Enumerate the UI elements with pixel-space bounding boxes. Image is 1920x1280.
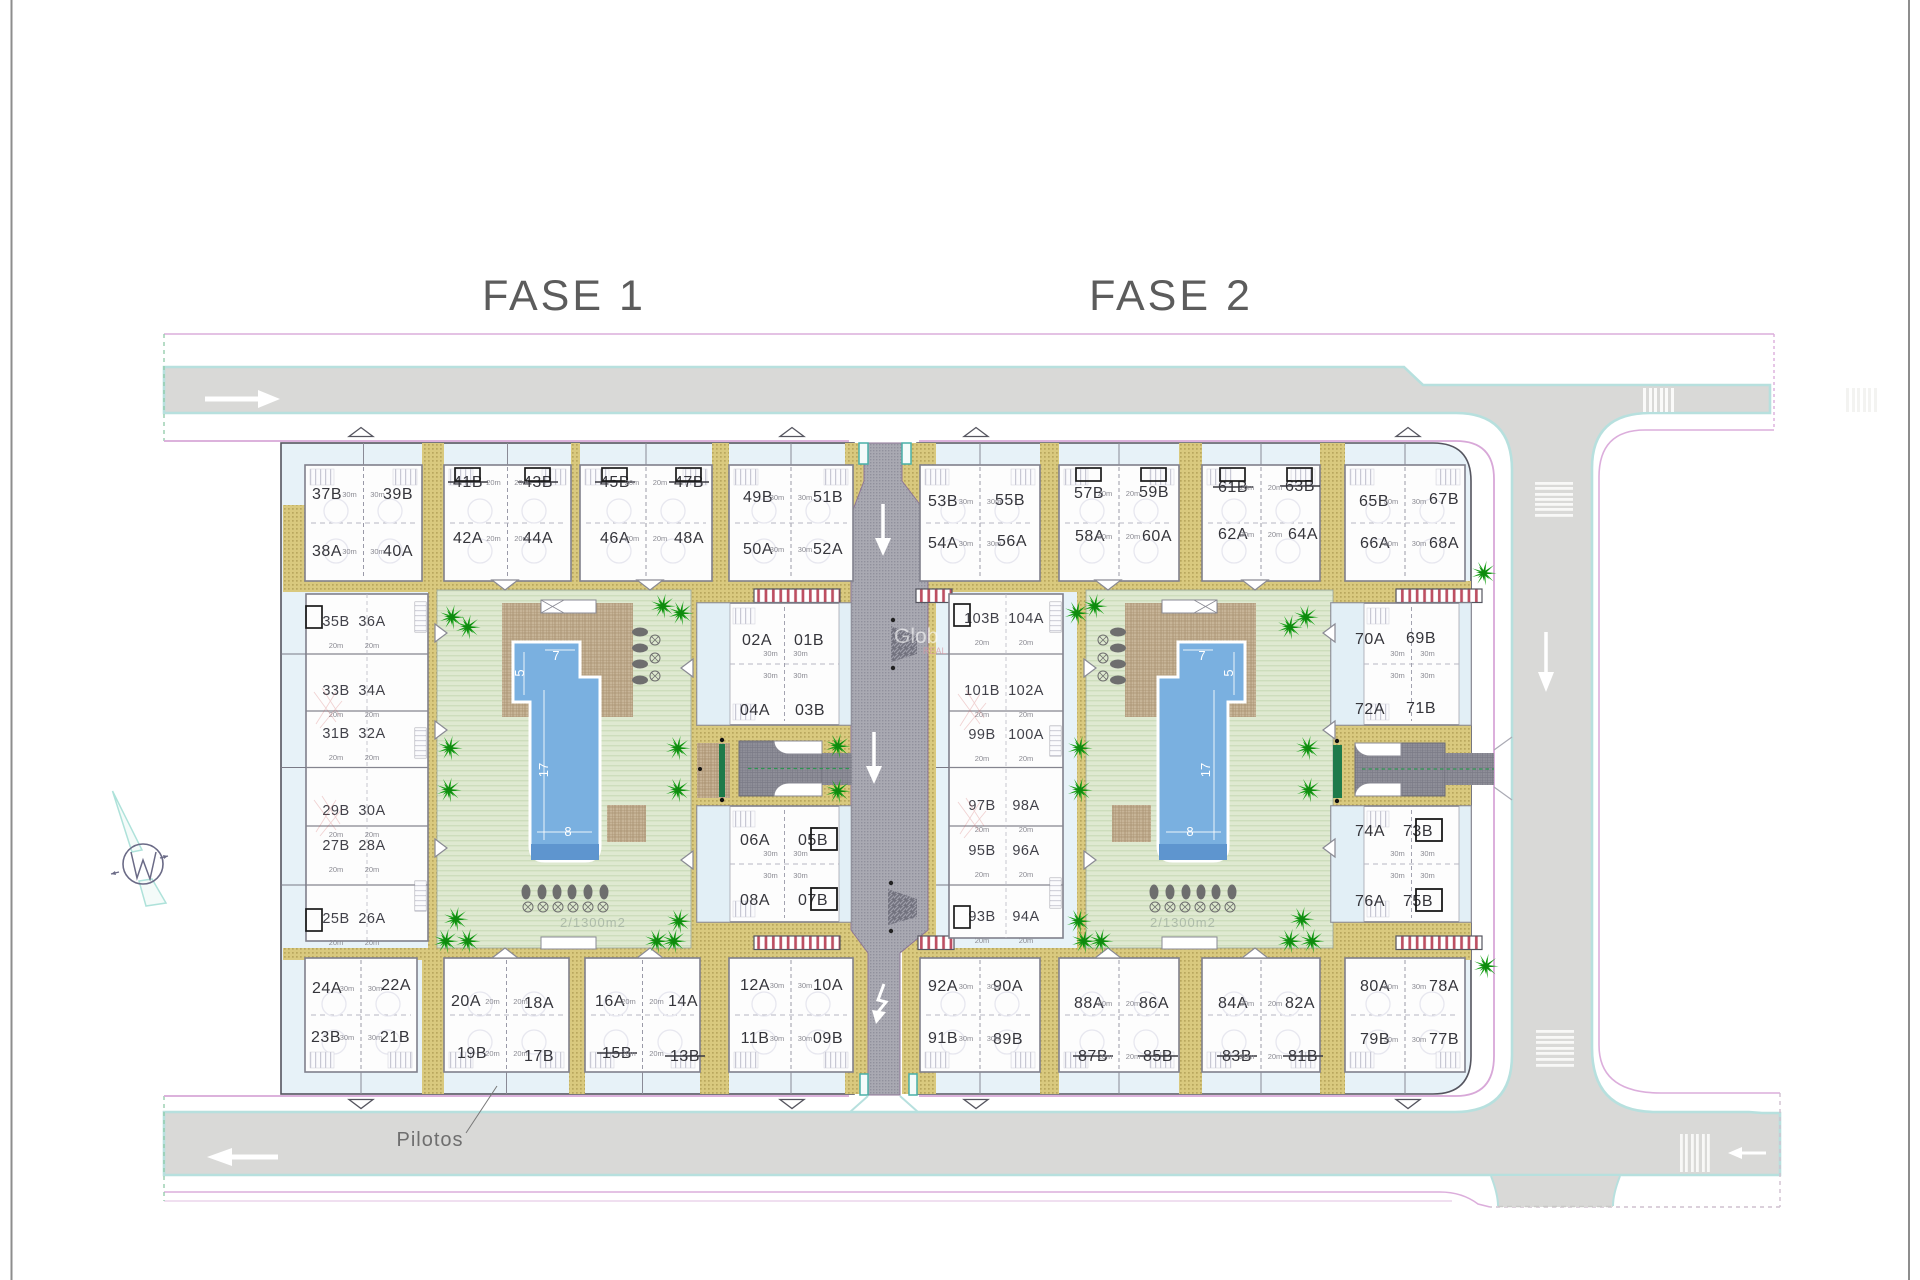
svg-text:30m: 30m <box>798 981 813 990</box>
svg-text:99B: 99B <box>968 727 995 743</box>
svg-text:20m: 20m <box>653 478 668 487</box>
svg-text:38A: 38A <box>312 543 342 560</box>
svg-text:20m: 20m <box>975 825 990 834</box>
svg-text:30m: 30m <box>1384 539 1399 548</box>
svg-text:30m: 30m <box>1390 871 1405 880</box>
svg-text:30m: 30m <box>368 1033 383 1042</box>
svg-text:30m: 30m <box>770 545 785 554</box>
svg-text:24A: 24A <box>312 980 342 997</box>
svg-text:20m: 20m <box>365 865 380 874</box>
svg-text:35B: 35B <box>322 614 349 630</box>
svg-text:03B: 03B <box>795 702 825 719</box>
svg-text:20m: 20m <box>1019 870 1034 879</box>
svg-text:07B: 07B <box>798 892 828 909</box>
svg-text:Glob: Glob <box>894 625 938 648</box>
svg-text:37B: 37B <box>312 486 342 503</box>
svg-text:30m: 30m <box>763 671 778 680</box>
svg-text:51B: 51B <box>813 489 843 506</box>
svg-text:30m: 30m <box>959 982 974 991</box>
svg-text:8: 8 <box>1186 824 1193 839</box>
svg-text:59B: 59B <box>1139 484 1169 501</box>
svg-text:20m: 20m <box>1126 489 1141 498</box>
svg-text:20A: 20A <box>451 993 481 1010</box>
svg-text:30m: 30m <box>368 984 383 993</box>
svg-text:20m: 20m <box>1098 1052 1113 1061</box>
svg-text:22A: 22A <box>381 977 411 994</box>
svg-text:32A: 32A <box>358 726 385 742</box>
svg-text:20m: 20m <box>514 478 529 487</box>
svg-text:06A: 06A <box>740 832 770 849</box>
svg-text:12A: 12A <box>740 977 770 994</box>
svg-text:78A: 78A <box>1429 978 1459 995</box>
svg-text:20m: 20m <box>1098 532 1113 541</box>
svg-text:30m: 30m <box>987 1034 1002 1043</box>
svg-text:30m: 30m <box>763 649 778 658</box>
svg-text:17B: 17B <box>524 1048 554 1065</box>
svg-text:48A: 48A <box>674 530 704 547</box>
svg-text:31B: 31B <box>322 726 349 742</box>
svg-text:8: 8 <box>564 824 571 839</box>
svg-text:20m: 20m <box>1019 825 1034 834</box>
svg-text:21B: 21B <box>380 1029 410 1046</box>
svg-text:REAL: REAL <box>923 646 947 656</box>
svg-text:96A: 96A <box>1012 843 1039 859</box>
svg-text:20m: 20m <box>1268 530 1283 539</box>
svg-text:17: 17 <box>536 763 551 777</box>
svg-text:20m: 20m <box>649 1049 664 1058</box>
svg-text:30m: 30m <box>987 982 1002 991</box>
svg-text:20m: 20m <box>975 936 990 945</box>
svg-text:20m: 20m <box>329 865 344 874</box>
svg-text:5: 5 <box>1221 669 1236 676</box>
svg-text:30m: 30m <box>1390 671 1405 680</box>
svg-text:02A: 02A <box>742 632 772 649</box>
svg-text:20m: 20m <box>1126 1052 1141 1061</box>
svg-text:30m: 30m <box>798 1034 813 1043</box>
svg-text:30m: 30m <box>798 493 813 502</box>
svg-text:30m: 30m <box>793 649 808 658</box>
svg-text:94A: 94A <box>1012 909 1039 925</box>
svg-text:09B: 09B <box>813 1030 843 1047</box>
svg-text:101B: 101B <box>964 683 1000 699</box>
svg-text:20m: 20m <box>653 534 668 543</box>
svg-text:20m: 20m <box>513 1049 528 1058</box>
svg-text:49B: 49B <box>743 489 773 506</box>
svg-text:97B: 97B <box>968 798 995 814</box>
svg-text:20m: 20m <box>365 641 380 650</box>
svg-text:08A: 08A <box>740 892 770 909</box>
svg-text:20m: 20m <box>1268 483 1283 492</box>
svg-text:20m: 20m <box>1240 530 1255 539</box>
svg-text:23B: 23B <box>311 1029 341 1046</box>
svg-text:20m: 20m <box>486 478 501 487</box>
svg-text:11B: 11B <box>741 1030 770 1047</box>
svg-text:20m: 20m <box>1098 999 1113 1008</box>
svg-text:20m: 20m <box>649 997 664 1006</box>
svg-text:20m: 20m <box>1019 936 1034 945</box>
svg-text:30m: 30m <box>770 981 785 990</box>
svg-text:27B: 27B <box>322 838 349 854</box>
svg-text:30m: 30m <box>793 849 808 858</box>
svg-text:30m: 30m <box>342 490 357 499</box>
svg-text:20m: 20m <box>1019 638 1034 647</box>
svg-text:30m: 30m <box>987 539 1002 548</box>
svg-text:56A: 56A <box>997 533 1027 550</box>
svg-text:28A: 28A <box>358 838 385 854</box>
svg-text:20m: 20m <box>486 534 501 543</box>
svg-text:75B: 75B <box>1403 893 1433 910</box>
svg-text:18A: 18A <box>524 995 554 1012</box>
svg-text:20m: 20m <box>1126 532 1141 541</box>
svg-text:60A: 60A <box>1142 528 1172 545</box>
svg-text:20m: 20m <box>1019 754 1034 763</box>
svg-text:20m: 20m <box>485 1049 500 1058</box>
svg-text:19B: 19B <box>457 1045 487 1062</box>
svg-text:30m: 30m <box>793 671 808 680</box>
svg-text:Pilotos: Pilotos <box>396 1129 463 1151</box>
svg-text:30m: 30m <box>1420 871 1435 880</box>
svg-text:72A: 72A <box>1355 701 1385 718</box>
svg-text:20m: 20m <box>1240 999 1255 1008</box>
svg-text:7: 7 <box>552 648 559 663</box>
svg-text:68A: 68A <box>1429 535 1459 552</box>
svg-text:92A: 92A <box>928 978 958 995</box>
svg-text:20m: 20m <box>625 478 640 487</box>
svg-text:86A: 86A <box>1139 995 1169 1012</box>
svg-text:05B: 05B <box>798 832 828 849</box>
svg-text:30m: 30m <box>1412 497 1427 506</box>
svg-text:20m: 20m <box>329 641 344 650</box>
svg-text:2/1300m2: 2/1300m2 <box>1150 915 1216 930</box>
svg-text:50A: 50A <box>743 541 773 558</box>
svg-text:73B: 73B <box>1403 823 1433 840</box>
svg-text:30m: 30m <box>1384 497 1399 506</box>
svg-text:30m: 30m <box>1420 849 1435 858</box>
svg-text:04A: 04A <box>740 702 770 719</box>
svg-text:30m: 30m <box>342 547 357 556</box>
svg-text:30m: 30m <box>340 1033 355 1042</box>
svg-text:30m: 30m <box>1384 1035 1399 1044</box>
svg-text:40A: 40A <box>383 543 413 560</box>
svg-text:76A: 76A <box>1355 893 1385 910</box>
svg-text:69B: 69B <box>1406 630 1436 647</box>
svg-text:26A: 26A <box>358 911 385 927</box>
svg-text:20m: 20m <box>365 938 380 947</box>
svg-text:30m: 30m <box>1420 649 1435 658</box>
svg-text:01B: 01B <box>794 632 824 649</box>
svg-text:30m: 30m <box>763 871 778 880</box>
svg-text:30m: 30m <box>770 1034 785 1043</box>
svg-text:FASE 2: FASE 2 <box>1089 272 1253 320</box>
svg-text:5: 5 <box>512 669 527 676</box>
svg-text:20m: 20m <box>975 870 990 879</box>
svg-text:34A: 34A <box>358 683 385 699</box>
svg-text:30m: 30m <box>959 1034 974 1043</box>
svg-text:104A: 104A <box>1008 611 1044 627</box>
svg-text:30m: 30m <box>1390 649 1405 658</box>
svg-text:20m: 20m <box>485 997 500 1006</box>
svg-text:20m: 20m <box>625 534 640 543</box>
svg-text:98A: 98A <box>1012 798 1039 814</box>
svg-text:20m: 20m <box>329 753 344 762</box>
svg-text:20m: 20m <box>975 754 990 763</box>
svg-text:102A: 102A <box>1008 683 1044 699</box>
svg-text:30m: 30m <box>370 547 385 556</box>
svg-text:20m: 20m <box>621 997 636 1006</box>
svg-text:30m: 30m <box>1390 849 1405 858</box>
svg-text:70A: 70A <box>1355 631 1385 648</box>
svg-text:30m: 30m <box>370 490 385 499</box>
svg-text:33B: 33B <box>322 683 349 699</box>
svg-text:20m: 20m <box>365 753 380 762</box>
svg-text:93B: 93B <box>968 909 995 925</box>
svg-text:30m: 30m <box>798 545 813 554</box>
svg-text:91B: 91B <box>928 1030 958 1047</box>
svg-text:30m: 30m <box>763 849 778 858</box>
svg-text:20m: 20m <box>329 938 344 947</box>
svg-text:20m: 20m <box>514 534 529 543</box>
svg-text:30m: 30m <box>959 497 974 506</box>
svg-text:10A: 10A <box>813 977 843 994</box>
svg-text:42A: 42A <box>453 530 483 547</box>
svg-text:39B: 39B <box>383 486 413 503</box>
svg-text:20m: 20m <box>1019 710 1034 719</box>
svg-text:30m: 30m <box>793 871 808 880</box>
svg-text:30m: 30m <box>1420 671 1435 680</box>
svg-text:52A: 52A <box>813 541 843 558</box>
svg-text:FASE 1: FASE 1 <box>482 272 646 320</box>
svg-text:20m: 20m <box>1268 1052 1283 1061</box>
svg-text:36A: 36A <box>358 614 385 630</box>
svg-text:100A: 100A <box>1008 727 1044 743</box>
svg-text:25B: 25B <box>322 911 349 927</box>
svg-text:82A: 82A <box>1285 995 1315 1012</box>
svg-text:20m: 20m <box>1126 999 1141 1008</box>
svg-text:71B: 71B <box>1406 700 1436 717</box>
svg-text:14A: 14A <box>668 993 698 1010</box>
svg-text:30m: 30m <box>987 497 1002 506</box>
svg-text:20m: 20m <box>365 710 380 719</box>
svg-text:20m: 20m <box>621 1049 636 1058</box>
svg-text:53B: 53B <box>928 493 958 510</box>
svg-text:30m: 30m <box>340 984 355 993</box>
svg-text:95B: 95B <box>968 843 995 859</box>
svg-text:30m: 30m <box>1412 1035 1427 1044</box>
svg-text:64A: 64A <box>1288 526 1318 543</box>
svg-text:30m: 30m <box>1412 982 1427 991</box>
svg-text:30m: 30m <box>770 493 785 502</box>
svg-text:20m: 20m <box>1268 999 1283 1008</box>
svg-text:20m: 20m <box>1098 489 1113 498</box>
svg-text:77B: 77B <box>1429 1031 1459 1048</box>
svg-text:20m: 20m <box>1240 1052 1255 1061</box>
svg-text:2/1300m2: 2/1300m2 <box>560 915 626 930</box>
svg-text:30A: 30A <box>358 803 385 819</box>
svg-text:67B: 67B <box>1429 491 1459 508</box>
svg-text:54A: 54A <box>928 535 958 552</box>
svg-text:20m: 20m <box>975 638 990 647</box>
svg-text:17: 17 <box>1198 763 1213 777</box>
svg-text:20m: 20m <box>1240 483 1255 492</box>
svg-text:74A: 74A <box>1355 823 1385 840</box>
svg-text:30m: 30m <box>1412 539 1427 548</box>
svg-text:30m: 30m <box>959 539 974 548</box>
svg-text:20m: 20m <box>513 997 528 1006</box>
svg-text:7: 7 <box>1198 648 1205 663</box>
svg-text:30m: 30m <box>1384 982 1399 991</box>
